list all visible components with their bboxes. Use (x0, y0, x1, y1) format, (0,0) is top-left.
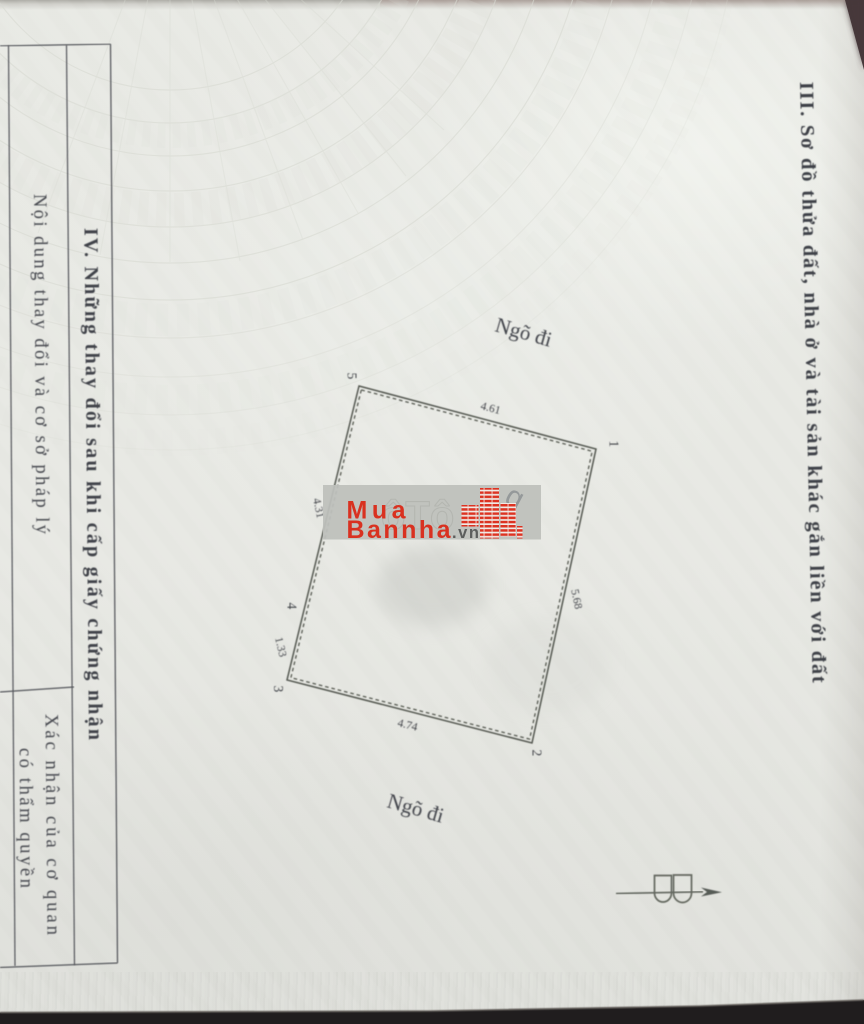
svg-text:2: 2 (530, 750, 545, 757)
svg-text:4.74: 4.74 (396, 717, 419, 734)
svg-text:Nội dung thay đổi và cơ sở phá: Nội dung thay đổi và cơ sở pháp lý (29, 194, 51, 535)
svg-text:.vn: .vn (452, 524, 479, 542)
svg-text:5: 5 (345, 373, 360, 380)
svg-text:5.68: 5.68 (568, 588, 584, 610)
svg-text:4.61: 4.61 (479, 400, 502, 417)
svg-text:III. Sơ đồ thửa đất, nhà ở và: III. Sơ đồ thửa đất, nhà ở và tài sản kh… (795, 82, 830, 684)
svg-text:Ngõ đi: Ngõ đi (385, 789, 447, 828)
svg-text:có thẩm quyền: có thẩm quyền (15, 748, 36, 888)
svg-text:1: 1 (607, 441, 622, 448)
svg-text:3: 3 (271, 686, 286, 693)
svg-text:Ngõ đi: Ngõ đi (493, 313, 555, 352)
svg-text:IV. Những thay đổi sau khi cấp: IV. Những thay đổi sau khi cấp giấy chứn… (80, 228, 106, 740)
svg-text:1.33: 1.33 (272, 636, 288, 659)
svg-text:Xác nhận của cơ quan: Xác nhận của cơ quan (41, 714, 63, 935)
svg-text:4: 4 (285, 603, 300, 610)
